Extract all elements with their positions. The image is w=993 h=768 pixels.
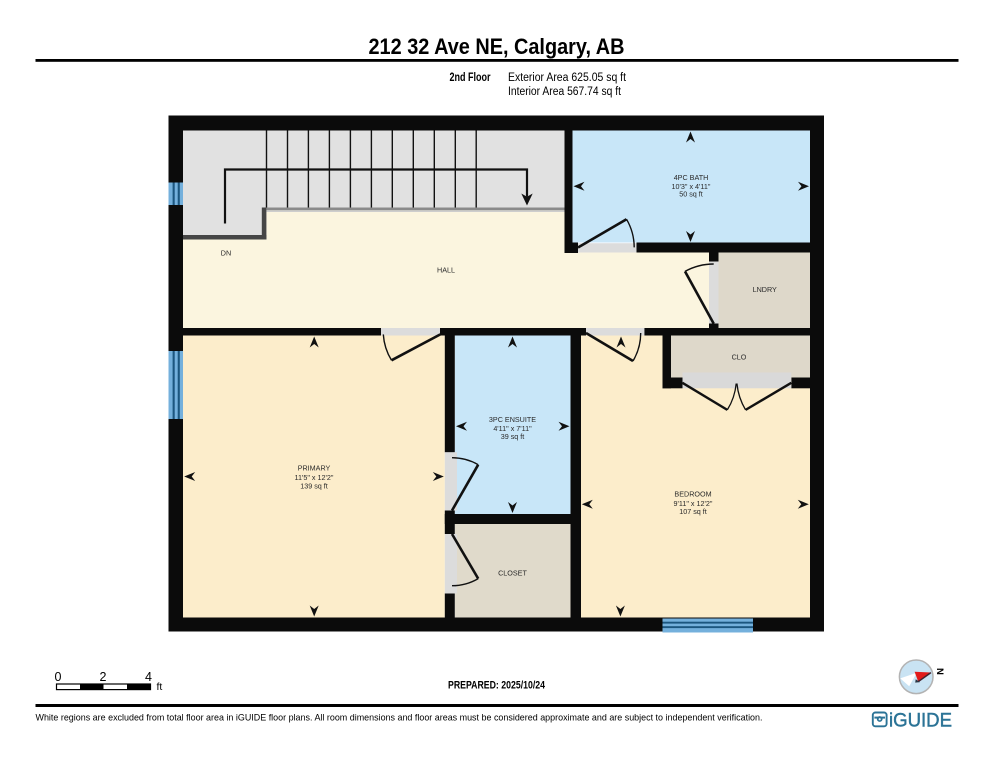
svg-text:N: N <box>934 668 945 675</box>
svg-text:CLO: CLO <box>732 353 747 362</box>
svg-text:4PC BATH: 4PC BATH <box>674 173 709 182</box>
svg-text:39 sq ft: 39 sq ft <box>501 432 525 441</box>
svg-text:PREPARED: 2025/10/24: PREPARED: 2025/10/24 <box>448 680 546 692</box>
svg-text:50 sq ft: 50 sq ft <box>679 190 703 199</box>
svg-text:212 32 Ave NE, Calgary, AB: 212 32 Ave NE, Calgary, AB <box>369 34 625 59</box>
svg-text:Exterior Area 625.05 sq ft: Exterior Area 625.05 sq ft <box>508 72 627 84</box>
svg-text:LNDRY: LNDRY <box>753 285 777 294</box>
svg-text:BEDROOM: BEDROOM <box>674 490 711 499</box>
svg-text:DN: DN <box>221 249 231 258</box>
svg-text:107 sq ft: 107 sq ft <box>679 507 707 516</box>
svg-text:HALL: HALL <box>437 266 455 275</box>
svg-text:PRIMARY: PRIMARY <box>298 464 331 473</box>
svg-text:4: 4 <box>145 670 152 684</box>
svg-text:139 sq ft: 139 sq ft <box>300 482 328 491</box>
svg-text:2: 2 <box>100 670 107 684</box>
svg-text:White regions are excluded fro: White regions are excluded from total fl… <box>36 713 763 724</box>
svg-text:Interior Area 567.74 sq ft: Interior Area 567.74 sq ft <box>508 86 622 98</box>
svg-text:0: 0 <box>55 670 62 684</box>
svg-text:ft: ft <box>157 681 163 693</box>
svg-text:iGUIDE: iGUIDE <box>889 711 952 732</box>
svg-text:3PC ENSUITE: 3PC ENSUITE <box>489 415 536 424</box>
svg-text:2nd Floor: 2nd Floor <box>450 72 491 84</box>
svg-text:CLOSET: CLOSET <box>498 569 527 578</box>
